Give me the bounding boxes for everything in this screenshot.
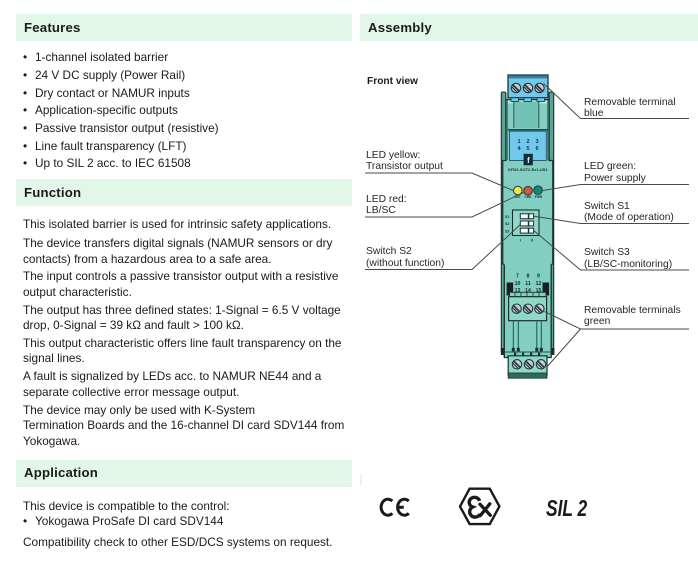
svg-text:8: 8 bbox=[527, 274, 530, 280]
svg-text:7: 7 bbox=[516, 274, 519, 280]
svg-text:5: 5 bbox=[526, 146, 529, 152]
svg-text:2: 2 bbox=[526, 139, 529, 145]
svg-text:10: 10 bbox=[515, 281, 521, 287]
svg-text:1: 1 bbox=[517, 139, 520, 145]
svg-text:II: II bbox=[531, 237, 533, 242]
svg-text:S3: S3 bbox=[505, 229, 509, 233]
svg-text:CHK: CHK bbox=[525, 195, 533, 199]
svg-text:KFD2-SOT2-Ex1.LB1: KFD2-SOT2-Ex1.LB1 bbox=[508, 167, 548, 172]
svg-text:f: f bbox=[527, 155, 530, 165]
svg-text:3: 3 bbox=[535, 139, 538, 145]
svg-text:PWR: PWR bbox=[535, 195, 543, 199]
svg-text:12: 12 bbox=[536, 281, 542, 287]
svg-text:9: 9 bbox=[537, 274, 540, 280]
svg-text:S2: S2 bbox=[505, 222, 509, 226]
svg-text:I: I bbox=[520, 237, 521, 242]
svg-text:11: 11 bbox=[525, 281, 531, 287]
svg-text:SIL 2: SIL 2 bbox=[546, 496, 588, 522]
svg-text:S1: S1 bbox=[505, 215, 509, 219]
svg-text:6: 6 bbox=[535, 146, 538, 152]
